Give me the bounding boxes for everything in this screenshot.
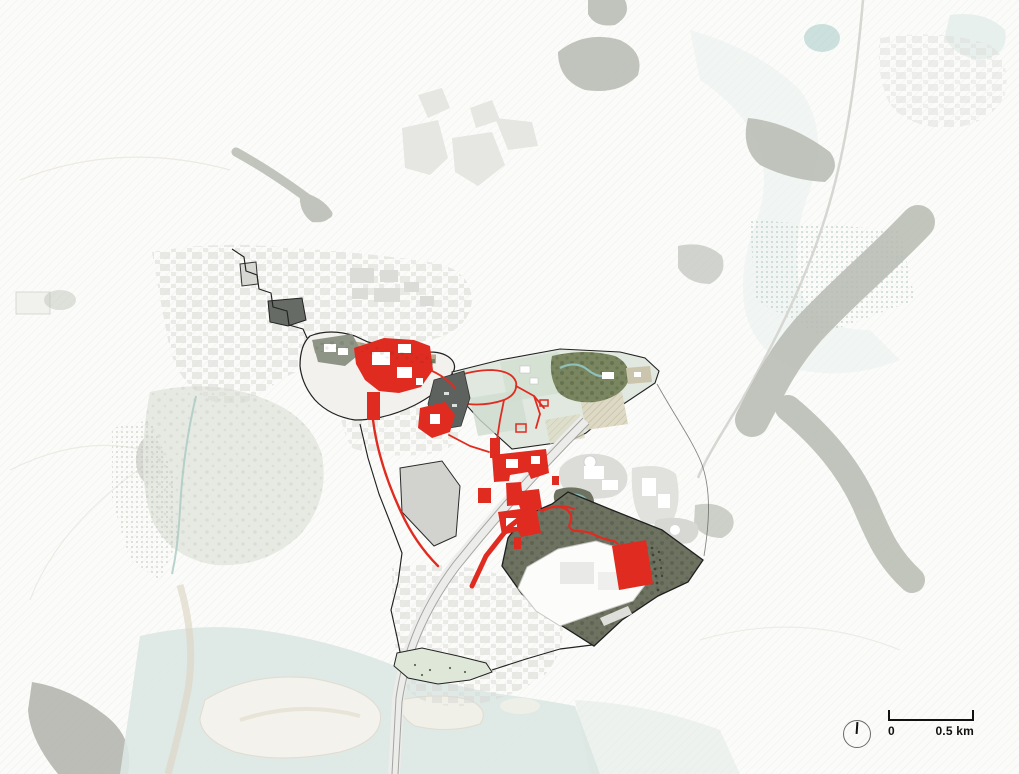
red-route-stub [367,392,380,420]
scale-start-label: 0 [888,724,895,738]
scale-bar-line [888,710,974,721]
scale-bar: 0 0.5 km [888,710,974,738]
map-stage: 0 0.5 km [0,0,1019,774]
red-building-small-east [552,476,559,485]
map-graphic [0,0,1019,774]
scale-end-label: 0.5 km [935,724,974,738]
pond-north [804,24,840,52]
north-arrow-icon [843,720,871,748]
red-building-factory [612,540,653,590]
